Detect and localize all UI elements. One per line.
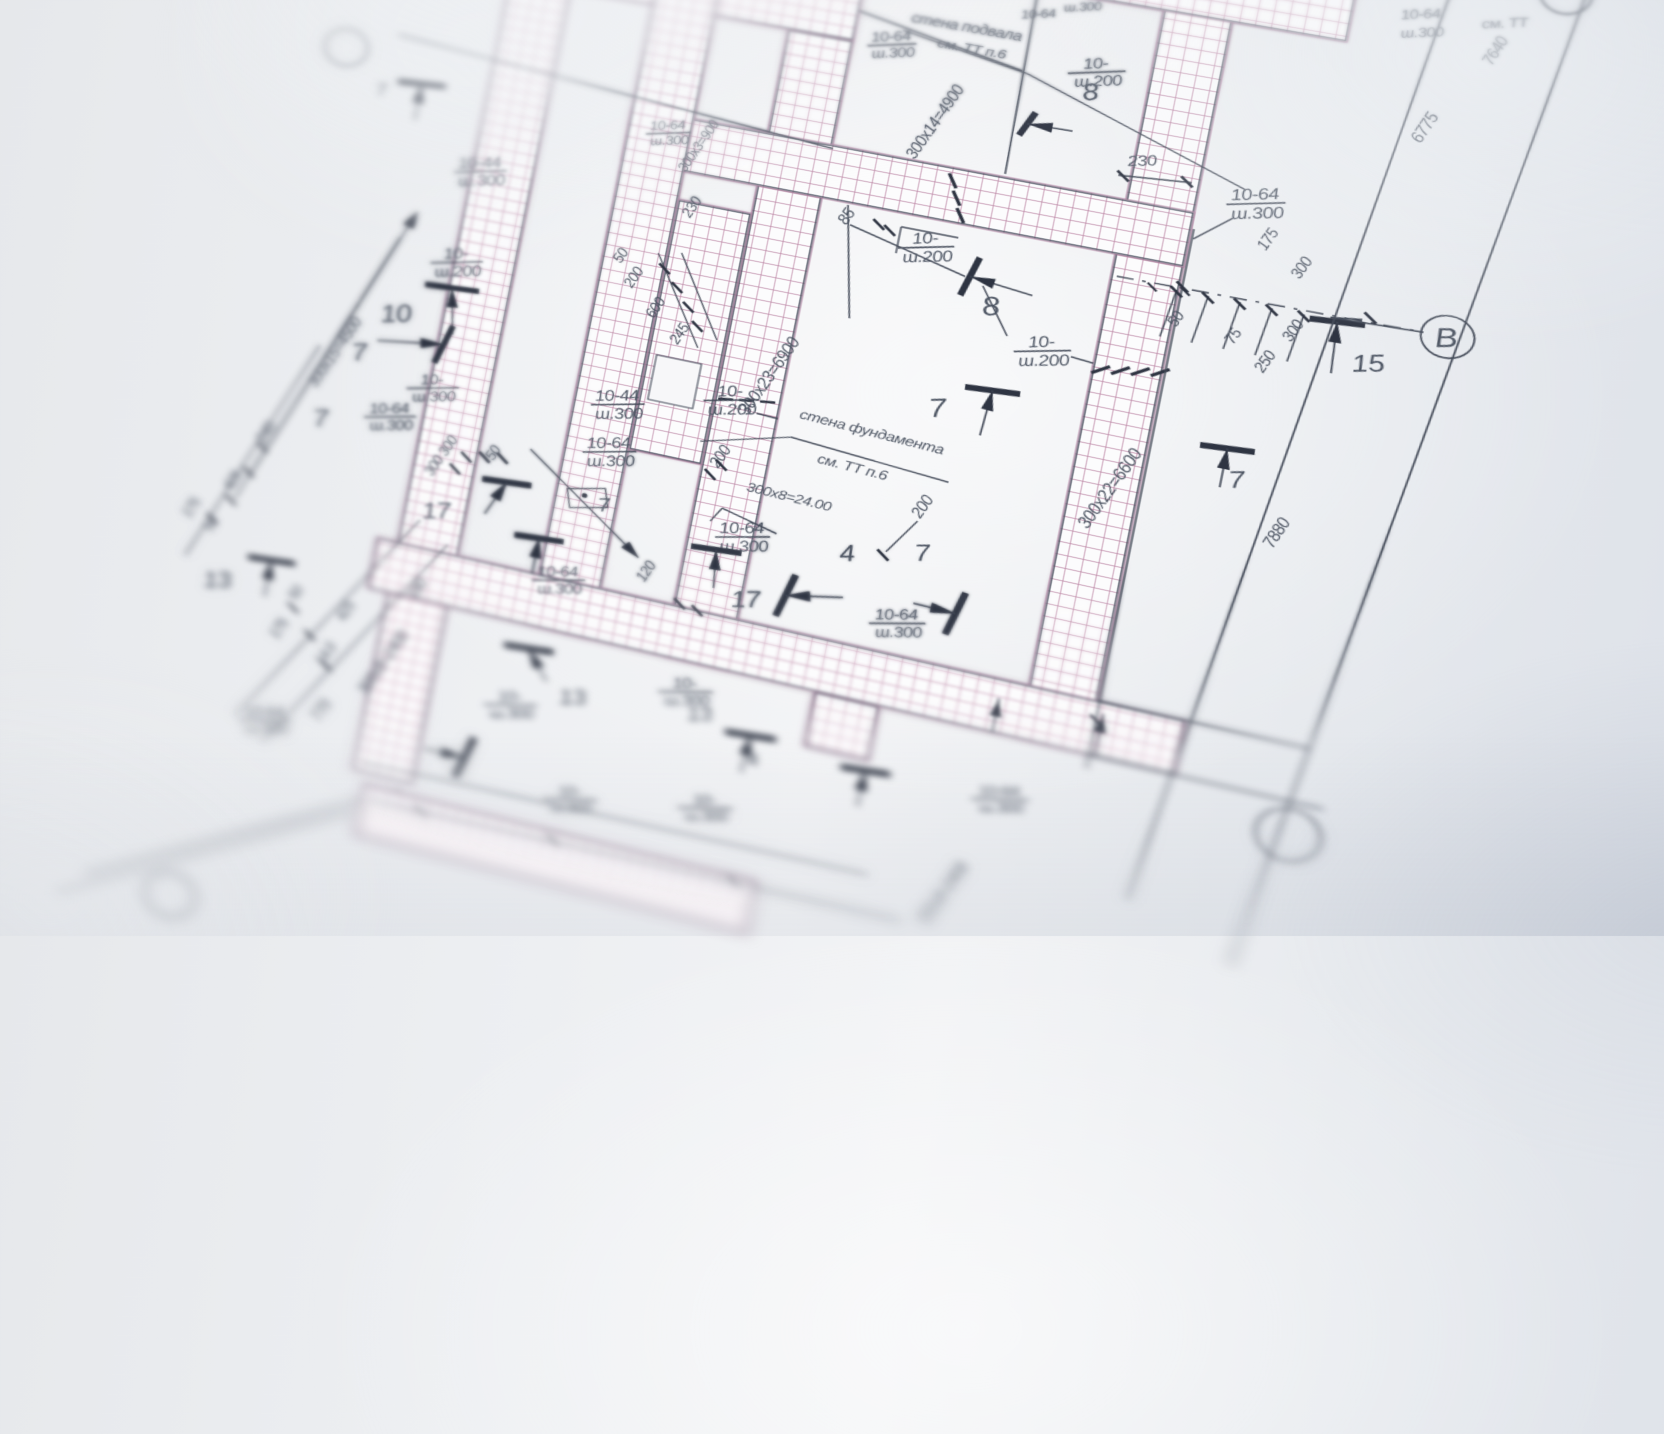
svg-text:стена фундамента: стена фундамента bbox=[798, 407, 946, 458]
svg-text:ш.300: ш.300 bbox=[244, 721, 289, 737]
svg-text:17: 17 bbox=[421, 499, 454, 524]
svg-text:ш.300: ш.300 bbox=[536, 581, 583, 597]
svg-text:10-64: 10-64 bbox=[1230, 185, 1281, 204]
svg-text:ш.200: ш.200 bbox=[707, 401, 758, 418]
svg-text:ш.300: ш.300 bbox=[1230, 204, 1285, 223]
svg-text:7: 7 bbox=[913, 541, 933, 567]
svg-text:10: 10 bbox=[379, 300, 413, 328]
svg-text:10-64: 10-64 bbox=[718, 520, 765, 537]
svg-text:250: 250 bbox=[1250, 348, 1281, 376]
svg-text:ш.300: ш.300 bbox=[594, 405, 644, 422]
svg-text:50: 50 bbox=[285, 583, 308, 603]
svg-text:300х14=4900: 300х14=4900 bbox=[902, 82, 970, 162]
svg-text:В: В bbox=[1433, 322, 1459, 353]
svg-text:4: 4 bbox=[745, 749, 759, 769]
svg-text:4: 4 bbox=[838, 541, 856, 567]
svg-text:ш.300: ш.300 bbox=[586, 453, 636, 470]
svg-text:ш.300: ш.300 bbox=[684, 809, 728, 825]
svg-text:ш.200: ш.200 bbox=[1017, 352, 1070, 370]
svg-text:10-: 10- bbox=[1027, 333, 1057, 351]
svg-text:425: 425 bbox=[333, 598, 360, 624]
svg-text:10-44: 10-44 bbox=[457, 154, 502, 172]
svg-text:10-64: 10-64 bbox=[978, 783, 1021, 799]
svg-text:см. ТТ: см. ТТ bbox=[1481, 15, 1531, 32]
svg-text:ш.300: ш.300 bbox=[1400, 24, 1446, 40]
svg-text:13: 13 bbox=[686, 703, 714, 725]
svg-text:см. ТТ п.6: см. ТТ п.6 bbox=[816, 452, 890, 484]
svg-text:13: 13 bbox=[202, 568, 233, 593]
svg-text:ш.300: ш.300 bbox=[871, 45, 916, 62]
svg-text:7880: 7880 bbox=[1259, 515, 1296, 552]
svg-text:10-: 10- bbox=[558, 784, 582, 800]
svg-text:300: 300 bbox=[1287, 254, 1318, 281]
svg-text:10-64: 10-64 bbox=[244, 704, 284, 720]
svg-text:ш.300: ш.300 bbox=[369, 418, 414, 434]
svg-text:10-64: 10-64 bbox=[1020, 7, 1056, 22]
svg-text:175: 175 bbox=[179, 495, 205, 520]
svg-text:300х8=2400: 300х8=2400 bbox=[914, 859, 973, 927]
svg-text:ш.300: ш.300 bbox=[1063, 0, 1103, 14]
svg-text:10-: 10- bbox=[420, 372, 444, 388]
svg-text:85: 85 bbox=[834, 205, 860, 227]
svg-text:ш.200: ш.200 bbox=[434, 263, 482, 280]
svg-text:6775: 6775 bbox=[1406, 109, 1444, 146]
svg-text:10-64: 10-64 bbox=[649, 118, 686, 133]
svg-text:7: 7 bbox=[350, 338, 370, 366]
svg-text:10-: 10- bbox=[497, 689, 522, 705]
svg-text:10-44: 10-44 bbox=[594, 387, 640, 404]
svg-text:10-: 10- bbox=[716, 383, 744, 400]
svg-text:ш.300: ш.300 bbox=[457, 172, 506, 190]
svg-text:7: 7 bbox=[1227, 467, 1249, 494]
svg-text:10-: 10- bbox=[672, 676, 697, 692]
svg-text:10-: 10- bbox=[1082, 55, 1109, 72]
svg-text:10-64: 10-64 bbox=[1400, 6, 1441, 22]
svg-text:10-: 10- bbox=[443, 245, 470, 262]
svg-text:10-: 10- bbox=[692, 793, 716, 809]
svg-text:15: 15 bbox=[1350, 351, 1387, 378]
svg-text:10-64: 10-64 bbox=[586, 435, 632, 452]
svg-text:ш.300: ш.300 bbox=[649, 133, 690, 148]
svg-text:770: 770 bbox=[307, 696, 336, 724]
svg-text:230: 230 bbox=[1125, 153, 1158, 170]
svg-text:7640: 7640 bbox=[1478, 34, 1513, 68]
svg-text:ш.300: ш.300 bbox=[411, 389, 457, 405]
svg-text:10-64: 10-64 bbox=[870, 29, 912, 46]
svg-text:10-: 10- bbox=[911, 230, 940, 248]
svg-text:10-64: 10-64 bbox=[874, 607, 919, 624]
svg-text:ш.200: ш.200 bbox=[901, 248, 953, 266]
svg-text:200: 200 bbox=[907, 492, 939, 522]
svg-text:14.0: 14.0 bbox=[312, 640, 341, 668]
svg-text:ш.300: ш.300 bbox=[874, 625, 924, 642]
svg-text:ш.300: ш.300 bbox=[978, 800, 1025, 817]
svg-text:175: 175 bbox=[266, 616, 293, 642]
svg-text:17: 17 bbox=[729, 587, 764, 613]
svg-text:ш.300: ш.300 bbox=[489, 706, 536, 723]
svg-text:10-64: 10-64 bbox=[369, 401, 410, 417]
svg-text:8: 8 bbox=[980, 291, 1002, 321]
svg-text:175: 175 bbox=[1253, 226, 1284, 253]
svg-text:7: 7 bbox=[375, 80, 389, 99]
svg-text:10-64: 10-64 bbox=[536, 564, 578, 580]
svg-text:7: 7 bbox=[312, 404, 332, 431]
svg-text:7: 7 bbox=[927, 393, 950, 423]
svg-text:300: 300 bbox=[1278, 317, 1309, 344]
svg-text:120: 120 bbox=[633, 558, 661, 584]
svg-text:13: 13 bbox=[558, 685, 588, 709]
